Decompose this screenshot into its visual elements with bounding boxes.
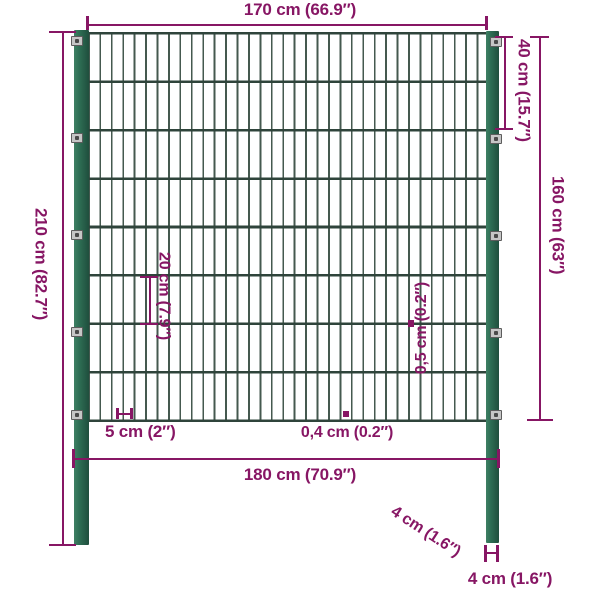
dim-line-outer-width: [74, 458, 500, 460]
dim-label-outer-width: 180 cm (70.9″): [200, 466, 400, 485]
dim-line-column-spacing: [116, 413, 133, 415]
post-clip: [71, 410, 83, 420]
post-clip: [490, 37, 502, 47]
post-clip: [71, 327, 83, 337]
dim-tick: [497, 449, 500, 468]
dim-label-v-wire-thickness: 0,4 cm (0.2″): [297, 424, 397, 442]
dim-tick: [140, 323, 158, 325]
wire-thickness-marker: [343, 411, 349, 417]
dim-tick: [140, 276, 158, 278]
post-clip: [71, 36, 83, 46]
dim-tick: [495, 36, 513, 38]
post-clip: [71, 230, 83, 240]
fence-panel-diagram: 170 cm (66.9″) 210 cm (82.7″) 40 cm (15.…: [0, 0, 600, 600]
post-clip: [490, 231, 502, 241]
dim-label-panel-height: 160 cm (63″): [548, 176, 567, 274]
dim-line-row-spacing: [149, 277, 151, 325]
dim-line-post-width: [484, 552, 499, 554]
dim-label-h-wire-thickness: 0,5 cm (0.2″): [413, 282, 431, 374]
post-clip: [71, 133, 83, 143]
dim-tick: [527, 419, 553, 421]
post-clip: [490, 328, 502, 338]
dim-tick: [495, 128, 513, 130]
fence-post-left: [74, 30, 89, 545]
post-clip: [490, 134, 502, 144]
dim-label-column-spacing: 5 cm (2″): [105, 423, 176, 442]
dim-label-mesh-width: 170 cm (66.9″): [150, 1, 450, 20]
dim-label-total-height: 210 cm (82.7″): [31, 208, 50, 320]
dim-tick: [530, 36, 549, 38]
dim-line-total-height: [62, 32, 64, 546]
dim-line-mesh-width: [88, 24, 487, 26]
dim-line-top-section: [504, 37, 506, 130]
dim-tick: [485, 16, 488, 30]
dim-label-row-spacing: 20 cm (7.9″): [155, 252, 173, 340]
dim-label-post-width: 4 cm (1.6″): [462, 570, 558, 589]
dim-line-panel-height: [539, 37, 541, 421]
dim-tick: [86, 16, 89, 30]
dim-tick: [72, 449, 75, 468]
dim-label-post-depth: 4 cm (1.6″): [387, 503, 463, 561]
post-clip: [490, 410, 502, 420]
dim-tick: [49, 31, 76, 33]
dim-label-top-section: 40 cm (15.7″): [514, 39, 533, 142]
dim-tick: [49, 544, 76, 546]
